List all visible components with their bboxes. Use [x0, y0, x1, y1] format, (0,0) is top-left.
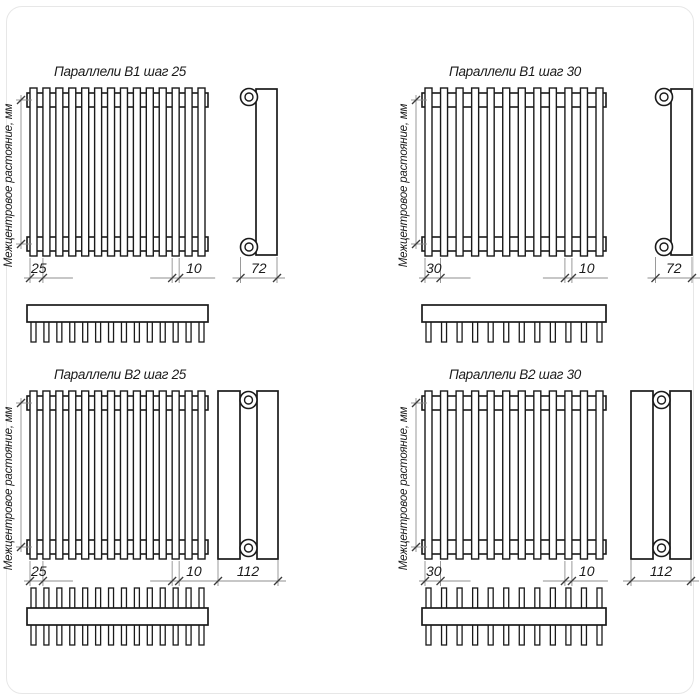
depth-dimension-label: 112	[650, 563, 673, 579]
panel-parallels-b1-step30: Параллели В1 шаг 30 Межцентровое растоян…	[395, 55, 700, 355]
drawing-canvas: Параллели В1 шаг 25 Межцентровое растоян…	[0, 0, 700, 700]
radiator-drawing-svg: 251072	[0, 55, 340, 355]
depth-dimension-label: 72	[666, 260, 682, 276]
pitch-dimension-label: 30	[426, 260, 442, 276]
depth-dimension-label: 112	[237, 563, 260, 579]
pitch-dimension-label: 25	[30, 260, 47, 276]
slat-width-dimension-label: 10	[579, 260, 595, 276]
panel-parallels-b1-step25: Параллели В1 шаг 25 Межцентровое растоян…	[0, 55, 340, 355]
radiator-drawing-svg: 3010112	[395, 358, 700, 658]
depth-dimension-label: 72	[251, 260, 267, 276]
slat-width-dimension-label: 10	[579, 563, 595, 579]
pitch-dimension-label: 30	[426, 563, 442, 579]
slat-width-dimension-label: 10	[186, 563, 202, 579]
pitch-dimension-label: 25	[30, 563, 47, 579]
radiator-drawing-svg: 301072	[395, 55, 700, 355]
panel-parallels-b2-step25: Параллели В2 шаг 25 Межцентровое растоян…	[0, 358, 340, 658]
radiator-drawing-svg: 2510112	[0, 358, 340, 658]
panel-parallels-b2-step30: Параллели В2 шаг 30 Межцентровое растоян…	[395, 358, 700, 658]
slat-width-dimension-label: 10	[186, 260, 202, 276]
